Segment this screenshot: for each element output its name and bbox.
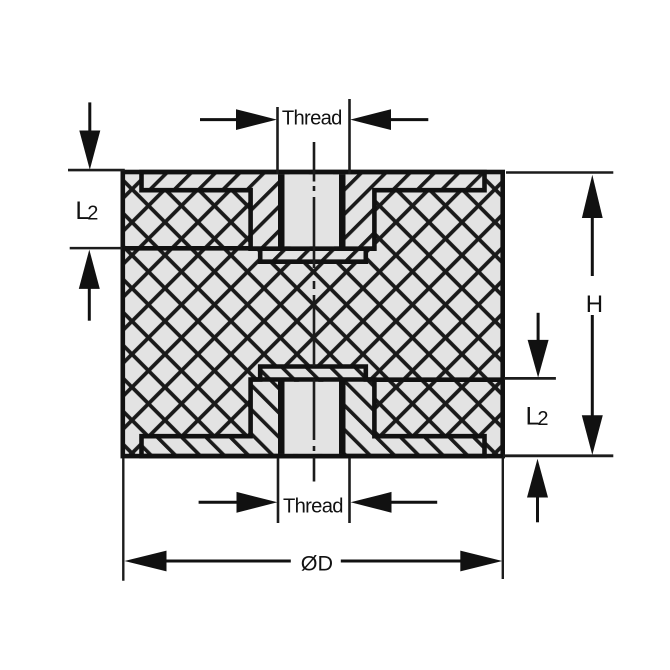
svg-text:2: 2: [87, 203, 98, 225]
svg-text:Thread: Thread: [282, 107, 342, 129]
svg-text:2: 2: [537, 408, 548, 430]
svg-text:Thread: Thread: [283, 496, 343, 518]
svg-text:ØD: ØD: [301, 551, 333, 575]
svg-text:H: H: [586, 291, 603, 318]
